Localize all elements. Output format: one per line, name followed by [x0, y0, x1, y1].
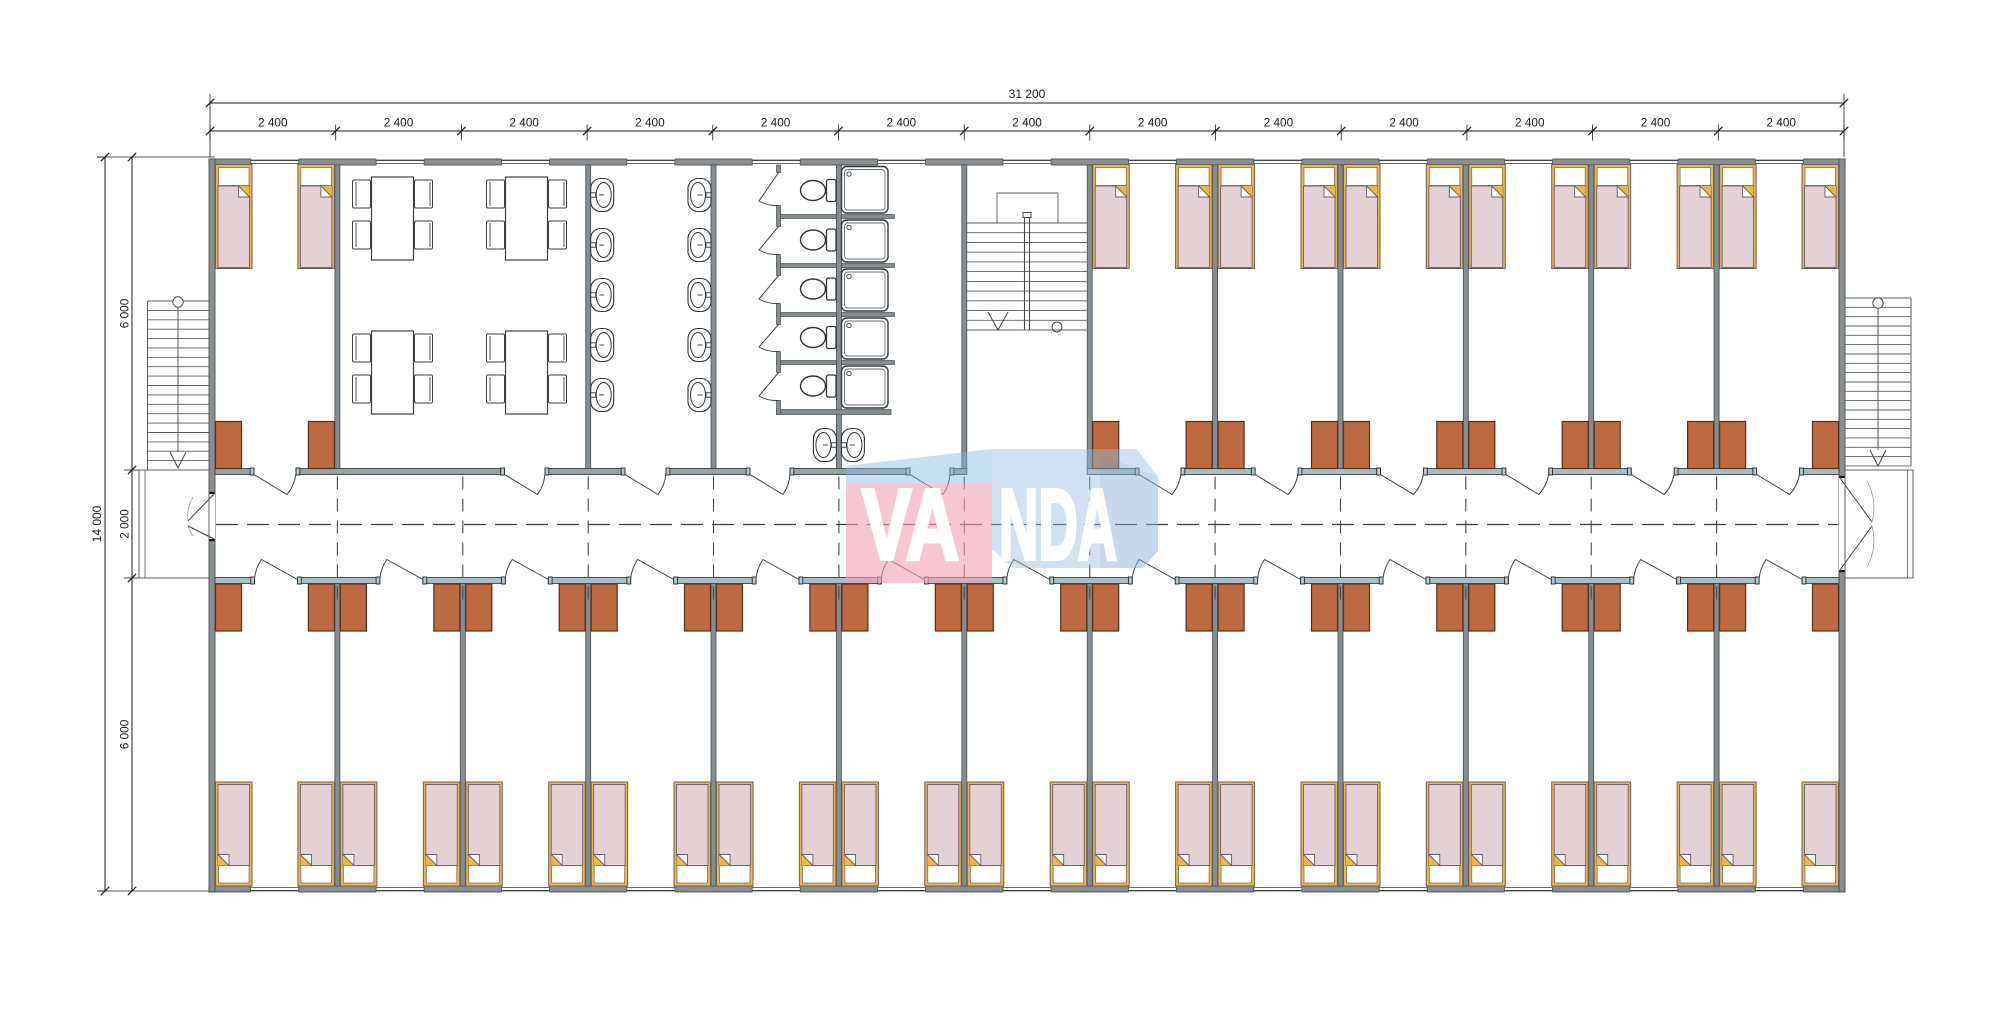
svg-text:2 400: 2 400 [761, 116, 791, 130]
svg-text:2 400: 2 400 [509, 116, 539, 130]
svg-text:2 400: 2 400 [635, 116, 665, 130]
svg-text:2 400: 2 400 [1641, 116, 1671, 130]
svg-text:2 400: 2 400 [1766, 116, 1796, 130]
svg-text:6 000: 6 000 [118, 719, 132, 749]
svg-text:VA: VA [862, 469, 959, 581]
svg-text:2 400: 2 400 [1012, 116, 1042, 130]
svg-text:31 200: 31 200 [1009, 87, 1046, 101]
svg-text:2 400: 2 400 [1138, 116, 1168, 130]
svg-text:2 400: 2 400 [1264, 116, 1294, 130]
svg-text:2 400: 2 400 [258, 116, 288, 130]
svg-text:NDA: NDA [999, 469, 1117, 581]
svg-text:2 400: 2 400 [887, 116, 917, 130]
svg-text:2 400: 2 400 [1515, 116, 1545, 130]
svg-text:6 000: 6 000 [118, 298, 132, 328]
svg-text:2 000: 2 000 [118, 509, 132, 539]
svg-text:2 400: 2 400 [384, 116, 414, 130]
svg-text:2 400: 2 400 [1389, 116, 1419, 130]
svg-text:14 000: 14 000 [90, 505, 104, 542]
